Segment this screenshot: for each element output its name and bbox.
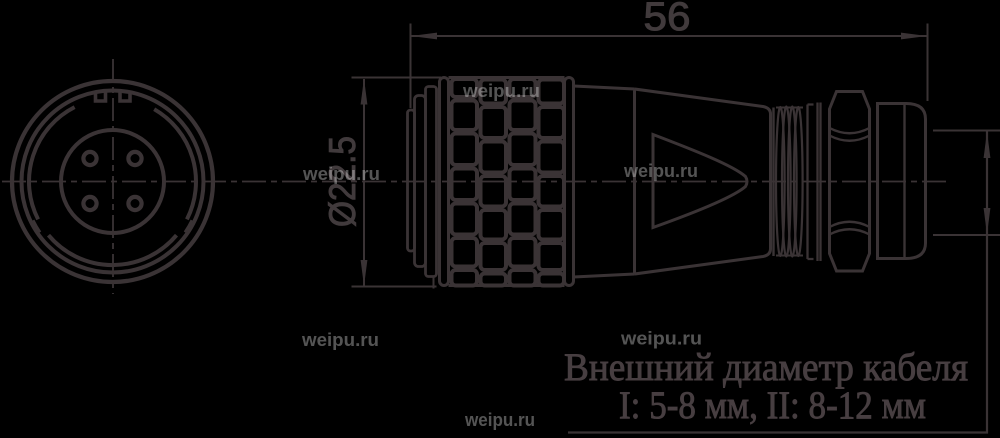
svg-text:weipu.ru: weipu.ru <box>623 160 698 181</box>
svg-text:weipu.ru: weipu.ru <box>620 328 702 349</box>
svg-text:weipu.ru: weipu.ru <box>302 163 380 184</box>
svg-text:weipu.ru: weipu.ru <box>462 80 540 101</box>
svg-text:56: 56 <box>644 0 691 39</box>
svg-text:weipu.ru: weipu.ru <box>464 409 535 430</box>
svg-text:I: 5-8 мм, II: 8-12 мм: I: 5-8 мм, II: 8-12 мм <box>619 384 926 427</box>
svg-text:weipu.ru: weipu.ru <box>301 329 379 350</box>
svg-text:Внешний диаметр кабеля: Внешний диаметр кабеля <box>564 346 968 389</box>
